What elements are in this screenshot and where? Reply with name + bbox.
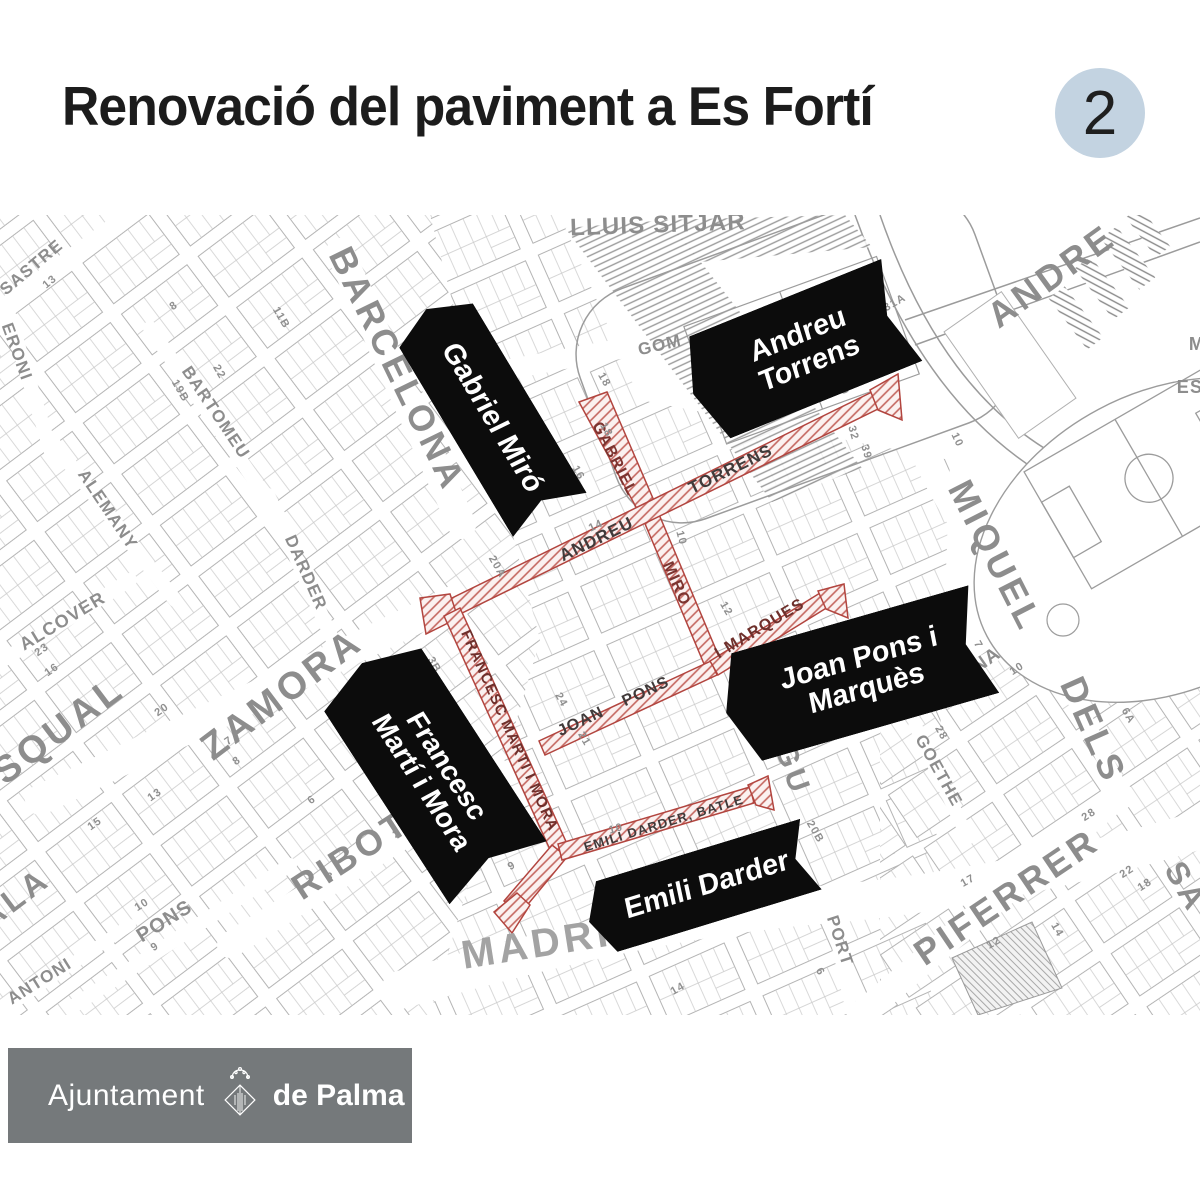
street-banner-andreu-torrens: AndreuTorrens — [672, 259, 922, 445]
slide: Renovació del paviment a Es Fortí 2 — [0, 0, 1200, 1200]
slide-number: 2 — [1083, 78, 1117, 149]
street-banner-joan-pons-i-marques: Joan Pons iMarquès — [711, 585, 999, 767]
palma-crest-icon — [217, 1065, 263, 1123]
street-banners-layer: Gabriel MiróAndreuTorrensFrancescMartí i… — [0, 215, 1200, 1015]
page-title: Renovació del paviment a Es Fortí — [62, 74, 873, 138]
map: GABRIELMIROANDREUTORRENSJOANPONSI MARQUE… — [0, 215, 1200, 1015]
street-banner-text: Gabriel Miró — [427, 326, 550, 497]
street-banner-francesc-marti-i-mora: FrancescMartí i Mora — [313, 632, 546, 905]
footer-bar: Ajuntament de Palma — [8, 1048, 412, 1143]
slide-number-badge: 2 — [1055, 68, 1145, 158]
footer-org-name: Ajuntament — [48, 1079, 205, 1113]
street-banner-gabriel-miro: Gabriel Miró — [389, 287, 586, 537]
street-banner-text: Emili Darder — [608, 846, 791, 931]
footer-org-name-bold: de Palma — [273, 1079, 405, 1113]
street-banner-emili-darder: Emili Darder — [578, 819, 821, 958]
